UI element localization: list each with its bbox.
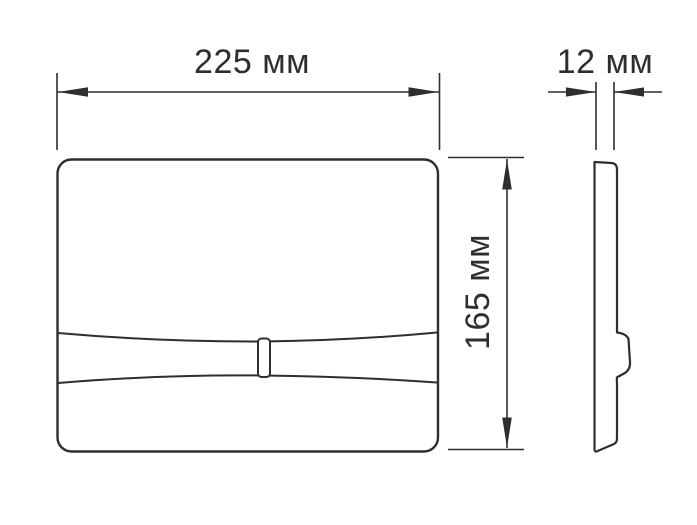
- width-arrow-left: [58, 87, 88, 97]
- button-divider: [258, 339, 270, 378]
- width-dimension-label: 225 мм: [194, 45, 310, 79]
- front-view: [58, 160, 439, 452]
- height-arrow-bottom: [502, 418, 512, 448]
- depth-arrow-right: [614, 87, 644, 96]
- depth-dimension: [548, 82, 662, 150]
- side-view: [595, 162, 631, 452]
- width-arrow-right: [409, 87, 439, 97]
- technical-drawing: 225 мм 12 мм 165 мм: [0, 0, 697, 525]
- width-dimension: [57, 73, 440, 150]
- side-profile-outline: [595, 162, 631, 452]
- depth-dimension-label: 12 мм: [557, 45, 654, 79]
- height-dimension-label: 165 мм: [461, 234, 495, 350]
- depth-arrow-left: [566, 87, 596, 96]
- plate-outline: [58, 160, 439, 452]
- height-arrow-top: [502, 160, 512, 190]
